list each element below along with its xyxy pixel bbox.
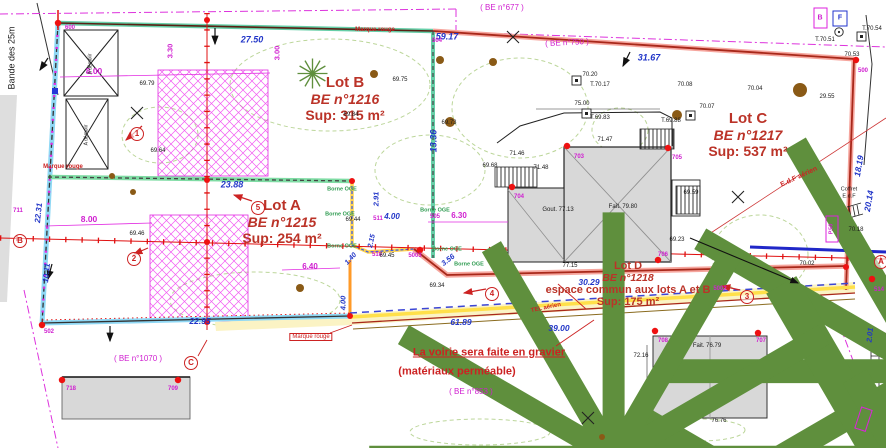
elevation-label: 70.18 bbox=[848, 227, 863, 233]
circled-marker: 3 bbox=[740, 290, 754, 304]
dimension-label: 8.00 bbox=[81, 215, 98, 224]
dimension-label: 27.50 bbox=[241, 36, 264, 45]
lot-be-number: BE n°1216 bbox=[305, 91, 384, 107]
lot-title: Lot B bbox=[305, 74, 384, 91]
dimension-label: 1.40 bbox=[344, 252, 358, 267]
circled-marker: 5 bbox=[251, 201, 265, 215]
survey-point-number: 705 bbox=[672, 155, 682, 161]
elevation-label: 70.20 bbox=[582, 72, 597, 78]
dimension-label: 30.29 bbox=[578, 278, 599, 287]
dimension-label: 61.89 bbox=[450, 318, 471, 327]
survey-point-number: 514 bbox=[874, 287, 884, 293]
survey-point-number: 718 bbox=[66, 386, 76, 392]
parcel-ref-label: ( BE n°750 ) bbox=[545, 38, 589, 48]
lot-area: Sup: 175 m² bbox=[546, 296, 711, 308]
elevation-label: 69.79 bbox=[139, 81, 154, 87]
parcel-ref-label: ( BE n°677 ) bbox=[480, 4, 524, 12]
survey-point-number: 504 bbox=[432, 38, 442, 44]
survey-point-number: 707 bbox=[756, 338, 766, 344]
dimension-label: 2.01 bbox=[866, 327, 875, 342]
elevation-label: 69.45 bbox=[379, 253, 394, 259]
dimension-label: 20.14 bbox=[863, 190, 875, 212]
dimension-label: 13.36 bbox=[430, 130, 439, 153]
lot-note: espace commun aux lots A et B bbox=[546, 284, 711, 296]
elevation-label: 70.07 bbox=[699, 104, 714, 110]
elevation-label: 77.15 bbox=[562, 263, 577, 269]
lot-area: Sup: 254 m² bbox=[242, 230, 321, 246]
labels-layer: Lot B BE n°1216 Sup: 315 m² Lot A BE n°1… bbox=[0, 0, 886, 448]
dimension-label: 6.30 bbox=[451, 212, 467, 220]
survey-point-number: 502 bbox=[44, 329, 54, 335]
survey-point-number: 706 bbox=[658, 252, 668, 258]
elevation-label: 29.55 bbox=[819, 94, 834, 100]
a-demolir-label: A démolir bbox=[89, 54, 94, 75]
borne-oge-label: Borne OGE bbox=[325, 212, 355, 218]
borne-oge-label: Borne OGE bbox=[327, 187, 357, 193]
road-note-line1: La voirie sera faite en gravier bbox=[413, 348, 565, 359]
survey-point-number: 709 bbox=[168, 386, 178, 392]
elevation-label: 69.23 bbox=[669, 237, 684, 243]
elevation-label: 71.48 bbox=[533, 165, 548, 171]
borne-oge-label: Borne OGE bbox=[420, 208, 450, 214]
circled-marker: 4 bbox=[485, 287, 499, 301]
utility-box-label: F bbox=[838, 15, 842, 22]
elevation-label: 69.34 bbox=[429, 283, 444, 289]
circled-marker: 2 bbox=[127, 252, 141, 266]
elevation-label: T.69.88 bbox=[661, 118, 681, 124]
lot-be-number: BE n°1215 bbox=[242, 214, 321, 230]
elevation-label: 69.68 bbox=[482, 163, 497, 169]
elevation-label: T.70.51 bbox=[815, 37, 835, 43]
dimension-label: 22.31 bbox=[34, 203, 44, 224]
dimension-label: 75.00 bbox=[574, 101, 589, 107]
survey-point-number: 511 bbox=[373, 216, 383, 222]
dimension-label: 22.95 bbox=[189, 317, 210, 326]
elevation-label: T.69.83 bbox=[590, 115, 610, 121]
elevation-label: 69.44 bbox=[345, 217, 360, 223]
survey-point-number: 500 bbox=[858, 68, 868, 74]
dimension-label: 6.40 bbox=[302, 263, 318, 271]
elevation-label: Fait. 76.79 bbox=[693, 343, 721, 349]
elevation-label: 70.02 bbox=[799, 261, 814, 267]
road-note-line2: (matériaux perméable) bbox=[398, 367, 515, 378]
edf-cabinet-label: Coffret bbox=[841, 187, 857, 193]
elevation-label: Gout. 77.13 bbox=[542, 207, 573, 213]
parcel-ref-label: ( BE n°1070 ) bbox=[114, 355, 162, 363]
elevation-label: T.70.17 bbox=[590, 82, 610, 88]
site-division-plan: Lot B BE n°1216 Sup: 315 m² Lot A BE n°1… bbox=[0, 0, 886, 448]
lot-area: Sup: 537 m² bbox=[708, 143, 787, 159]
elevation-label: 70.04 bbox=[747, 86, 762, 92]
survey-point-number: 708 bbox=[658, 338, 668, 344]
marque-rouge-label: Marque rouge bbox=[355, 27, 395, 33]
a-demolir-label: A démolir bbox=[85, 125, 90, 146]
elevation-label: 70.08 bbox=[677, 82, 692, 88]
elevation-label: 69.84 bbox=[343, 112, 358, 118]
borne-oge-label: Borne OGE bbox=[327, 244, 357, 250]
survey-point-number: 703 bbox=[574, 154, 584, 160]
dimension-label: 4.00 bbox=[339, 296, 347, 311]
elevation-label: 69.64 bbox=[150, 148, 165, 154]
lot-c-label: Lot C BE n°1217 Sup: 537 m² bbox=[708, 110, 787, 159]
edf-aerial-label: E.d.F aérien bbox=[780, 165, 819, 188]
dimension-label: 10.11 bbox=[42, 263, 52, 283]
dimension-label: 3.00 bbox=[273, 46, 281, 61]
dimension-label: 2.15 bbox=[367, 234, 377, 249]
dimension-label: 4.00 bbox=[384, 213, 400, 221]
borne-oge-label: Borne OGE bbox=[432, 247, 462, 253]
marque-rouge-label: Marque rouge bbox=[289, 333, 332, 341]
circled-point-A: A bbox=[874, 255, 886, 269]
survey-point-number: 600 bbox=[65, 25, 75, 31]
dimension-label: 39.00 bbox=[548, 324, 569, 333]
survey-point-number: 5002 bbox=[713, 286, 726, 292]
utility-box-label: B bbox=[817, 15, 822, 22]
lot-be-number: BE n°1218 bbox=[546, 272, 711, 284]
survey-point-number: 5003 bbox=[408, 253, 421, 259]
elevation-label: 71.46 bbox=[509, 151, 524, 157]
borne-oge-label: Borne OGE bbox=[454, 262, 484, 268]
elevation-label: 69.46 bbox=[129, 231, 144, 237]
elevation-label: 69.73 bbox=[441, 120, 456, 126]
circled-point-B: B bbox=[13, 234, 27, 248]
elevation-label: 76.76 bbox=[711, 418, 726, 424]
circled-marker: 1 bbox=[130, 127, 144, 141]
elevation-label: 72.16 bbox=[633, 353, 648, 359]
elevation-label: Faît. 79.80 bbox=[609, 204, 638, 210]
dimension-label: 2.91 bbox=[372, 192, 380, 207]
circled-point-C: C bbox=[184, 356, 198, 370]
elevation-label: 70.53 bbox=[844, 52, 859, 58]
survey-point-number: 711 bbox=[13, 208, 23, 214]
lot-be-number: BE n°1217 bbox=[708, 127, 787, 143]
dimension-label: 18.19 bbox=[853, 155, 865, 177]
survey-point-number: 505 bbox=[430, 214, 440, 220]
parcel-ref-label: ( BE n°853 ) bbox=[449, 388, 493, 396]
dimension-label: 31.67 bbox=[638, 54, 661, 63]
elevation-label: 69.75 bbox=[392, 77, 407, 83]
survey-point-number: 704 bbox=[514, 194, 524, 200]
bande-des-25m-label: Bande des 25m bbox=[8, 26, 17, 89]
pole-label: P.50 bbox=[829, 224, 835, 235]
dimension-label: 3.30 bbox=[166, 44, 174, 59]
elevation-label: T.70.54 bbox=[862, 26, 882, 32]
edf-cabinet-label: E.d.F bbox=[842, 194, 855, 200]
marque-rouge-label: Marque rouge bbox=[43, 164, 83, 170]
elevation-label: 69.59 bbox=[683, 190, 698, 196]
dimension-label: 23.88 bbox=[221, 181, 244, 190]
lot-title: Lot C bbox=[708, 110, 787, 127]
elevation-label: 71.47 bbox=[597, 137, 612, 143]
